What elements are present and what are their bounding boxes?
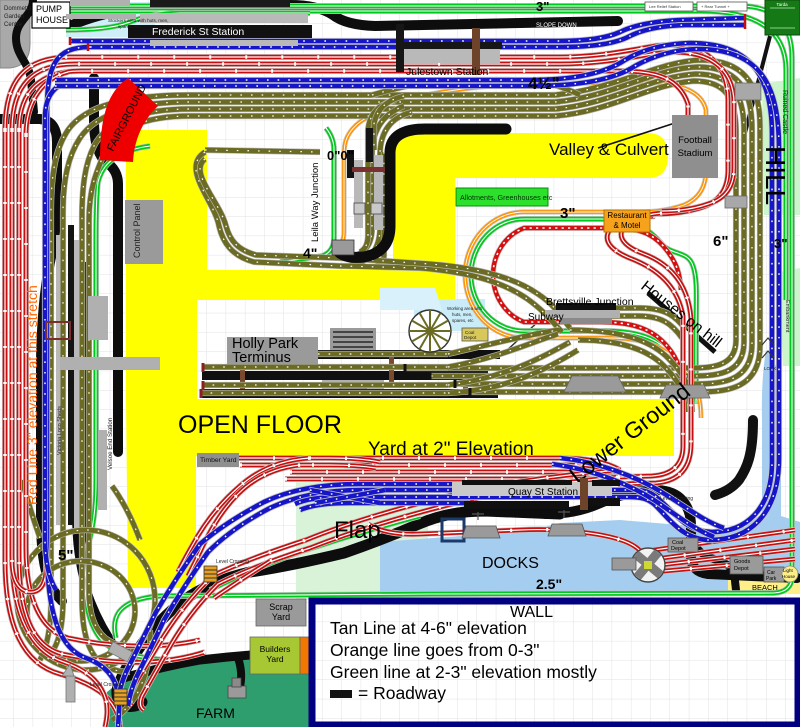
svg-text:Level Crossing: Level Crossing (660, 496, 693, 502)
svg-text:Orange line goes from 0-3": Orange line goes from 0-3" (330, 640, 540, 660)
svg-text:OPEN FLOOR: OPEN FLOOR (178, 411, 342, 439)
svg-text:Yard: Yard (272, 612, 290, 622)
svg-text:Level Crossing: Level Crossing (216, 559, 249, 565)
svg-text:Julestown Station: Julestown Station (406, 66, 488, 78)
svg-text:Tarda: Tarda (776, 2, 788, 7)
svg-text:Restaurant: Restaurant (607, 211, 647, 220)
svg-text:2.5": 2.5" (536, 576, 562, 592)
svg-text:Garden: Garden (4, 14, 24, 20)
svg-text:HILL: HILL (760, 146, 791, 205)
svg-text:3": 3" (536, 0, 549, 14)
svg-text:Frederick St Station: Frederick St Station (152, 26, 244, 38)
svg-text:House: House (782, 574, 796, 579)
svg-text:Brettsville Junction: Brettsville Junction (546, 296, 634, 308)
svg-text:FARM: FARM (196, 705, 235, 721)
svg-text:SLOPE DOWN: SLOPE DOWN (536, 23, 577, 29)
svg-text:6": 6" (713, 233, 728, 250)
svg-text:3": 3" (774, 236, 787, 251)
svg-text:PUMP: PUMP (36, 4, 62, 14)
svg-text:Goods: Goods (734, 559, 750, 565)
svg-text:Working area with: Working area with (447, 306, 483, 311)
svg-text:Lee Relief Station: Lee Relief Station (649, 4, 681, 9)
svg-text:Control Panel: Control Panel (132, 203, 142, 258)
svg-text:4½": 4½" (528, 74, 560, 93)
svg-text:Green line at 2-3" elevation m: Green line at 2-3" elevation mostly (330, 662, 597, 682)
svg-text:spares, etc: spares, etc (452, 318, 474, 323)
svg-text:Yard at 2" Elevation: Yard at 2" Elevation (368, 439, 534, 460)
svg-text:Flap: Flap (334, 517, 381, 544)
svg-text:Scrap: Scrap (269, 602, 293, 612)
svg-text:Light: Light (783, 568, 794, 573)
svg-text:Ruined Castle: Ruined Castle (781, 90, 788, 134)
svg-text:Park: Park (766, 576, 777, 582)
svg-text:spares, etc: spares, etc (118, 24, 141, 29)
svg-text:= Roadway: = Roadway (358, 683, 446, 703)
svg-text:Builders: Builders (260, 644, 291, 654)
svg-text:Embankment: Embankment (784, 300, 790, 333)
svg-text:Stadium: Stadium (678, 148, 713, 159)
svg-text:Velsoe End Station: Velsoe End Station (107, 417, 114, 470)
svg-text:Leila Way Junction: Leila Way Junction (310, 163, 321, 242)
svg-text:Depot: Depot (464, 335, 477, 340)
svg-text:Terminus: Terminus (232, 350, 291, 366)
svg-text:Timber Yard: Timber Yard (200, 457, 237, 464)
svg-text:Dommetts: Dommetts (4, 6, 31, 12)
svg-text:Allotments, Greenhouses etc: Allotments, Greenhouses etc (460, 193, 553, 202)
svg-text:4": 4" (303, 245, 317, 261)
svg-text:BEACH: BEACH (752, 583, 778, 592)
svg-text:HOUSE: HOUSE (36, 15, 68, 25)
svg-text:Centre: Centre (4, 22, 23, 28)
svg-text:+ Rear Tunnel +: + Rear Tunnel + (701, 4, 730, 9)
svg-text:Depot: Depot (734, 566, 749, 572)
svg-text:3": 3" (560, 205, 575, 222)
svg-text:DOCKS: DOCKS (482, 555, 539, 572)
svg-text:5": 5" (58, 547, 73, 564)
svg-text:& Motel: & Motel (613, 221, 640, 230)
svg-text:Subway: Subway (528, 312, 564, 323)
svg-text:Level Crossing: Level Crossing (90, 682, 123, 688)
svg-text:Yard: Yard (266, 654, 284, 664)
svg-text:0"0": 0"0" (327, 148, 354, 163)
svg-text:Depot: Depot (671, 546, 686, 552)
svg-text:Football: Football (678, 135, 712, 146)
svg-text:Victoria Loco Sheds: Victoria Loco Sheds (57, 406, 63, 455)
svg-text:LOCK: LOCK (764, 366, 776, 371)
svg-text:Valley & Culvert: Valley & Culvert (549, 140, 669, 159)
svg-text:Tan Line at 4-6" elevation: Tan Line at 4-6" elevation (330, 618, 527, 638)
svg-text:Red Line 3" elevation at this: Red Line 3" elevation at this stretch (24, 285, 40, 505)
svg-text:Quay St Station: Quay St Station (508, 487, 578, 498)
svg-text:huts, men,: huts, men, (452, 312, 473, 317)
